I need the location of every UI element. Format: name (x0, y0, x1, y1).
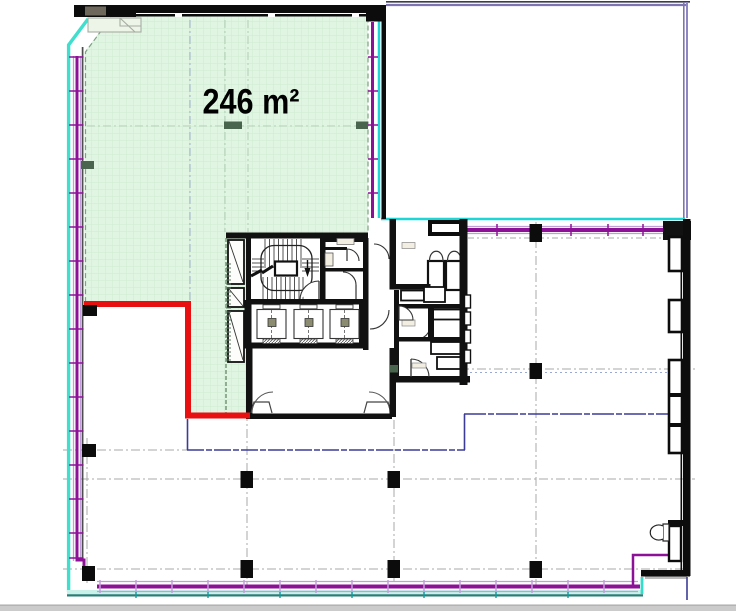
svg-text:246 m²: 246 m² (203, 83, 300, 122)
